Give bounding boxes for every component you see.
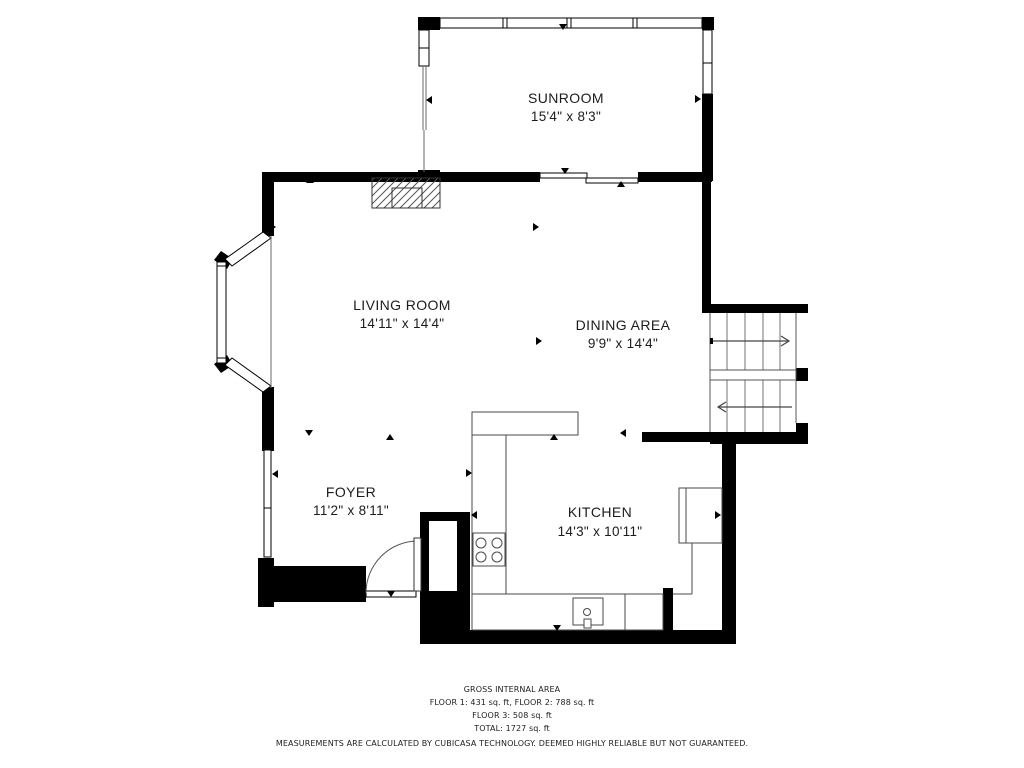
- direction-marker: [305, 430, 313, 436]
- stove-burner: [476, 538, 486, 548]
- stove-burner: [476, 552, 486, 562]
- gross-internal-area-title: GROSS INTERNAL AREA: [0, 683, 1024, 696]
- measurement-disclaimer: MEASUREMENTS ARE CALCULATED BY CUBICASA …: [0, 738, 1024, 750]
- wall: [796, 423, 808, 436]
- floor-1-2-area: FLOOR 1: 431 sq. ft, FLOOR 2: 788 sq. ft: [0, 696, 1024, 709]
- area-summary: GROSS INTERNAL AREA FLOOR 1: 431 sq. ft,…: [0, 683, 1024, 750]
- stove-burner: [492, 552, 502, 562]
- wall: [702, 180, 711, 304]
- windows: [217, 18, 712, 597]
- door-swing-arc: [366, 541, 418, 593]
- stair-arrow-start-tick: [710, 338, 713, 344]
- wall: [663, 588, 673, 634]
- floor-plan-drawing: SUNROOM 15'4" x 8'3" LIVING ROOM 14'11" …: [0, 0, 1024, 768]
- room-label-living-room: LIVING ROOM: [353, 297, 451, 313]
- walls: [214, 17, 808, 644]
- bay-window-pane: [217, 262, 226, 363]
- counter-peninsula: [472, 412, 578, 435]
- thin-partitions: [271, 66, 426, 388]
- wall: [262, 387, 274, 451]
- direction-marker: [272, 470, 278, 478]
- room-dims-sunroom: 15'4" x 8'3": [531, 109, 601, 124]
- stove-burner: [492, 538, 502, 548]
- wall: [796, 368, 808, 381]
- sink-faucet: [584, 609, 591, 616]
- total-area: TOTAL: 1727 sq. ft: [0, 722, 1024, 735]
- room-label-kitchen: KITCHEN: [568, 504, 632, 520]
- room-label-foyer: FOYER: [326, 484, 376, 500]
- room-label-sunroom: SUNROOM: [528, 90, 604, 106]
- floor-plan-page: SUNROOM 15'4" x 8'3" LIVING ROOM 14'11" …: [0, 0, 1024, 768]
- room-dims-foyer: 11'2" x 8'11": [313, 503, 389, 518]
- wall: [710, 432, 808, 444]
- room-dims-dining-area: 9'9" x 14'4": [588, 336, 658, 351]
- wall: [702, 94, 713, 181]
- direction-marker: [536, 337, 542, 345]
- wall: [638, 172, 712, 182]
- room-dims-living-room: 14'11" x 14'4": [360, 316, 445, 331]
- wall: [258, 566, 366, 602]
- kitchen-fixtures: [472, 412, 722, 630]
- sink-drain: [584, 619, 591, 628]
- direction-marker: [695, 95, 701, 103]
- direction-marker: [386, 434, 394, 440]
- closet-interior: [429, 521, 457, 591]
- sliding-door-panel: [540, 173, 587, 178]
- wall: [702, 17, 714, 30]
- fireplace: [372, 178, 440, 208]
- sliding-door-panel: [586, 178, 638, 183]
- direction-marker: [620, 429, 626, 437]
- stair-landing: [710, 370, 796, 380]
- entry-door: [366, 538, 421, 593]
- counter-left-run: [472, 435, 506, 594]
- wall: [418, 17, 440, 30]
- window: [264, 450, 271, 557]
- direction-marker: [426, 96, 432, 104]
- floor-3-area: FLOOR 3: 508 sq. ft: [0, 709, 1024, 722]
- wall: [722, 442, 736, 644]
- staircase-frame: [710, 313, 796, 432]
- window: [703, 30, 712, 94]
- fireplace-inner: [392, 188, 422, 208]
- wall: [448, 630, 736, 644]
- counter-bottom-run: [472, 594, 663, 630]
- bay-window-pane: [225, 232, 271, 266]
- room-dims-kitchen: 14'3" x 10'11": [558, 524, 643, 539]
- door-leaf: [414, 538, 421, 591]
- bay-window-pane: [225, 358, 271, 392]
- wall: [702, 304, 808, 313]
- direction-marker: [533, 223, 539, 231]
- room-label-dining-area: DINING AREA: [576, 317, 671, 333]
- direction-marker: [466, 469, 472, 477]
